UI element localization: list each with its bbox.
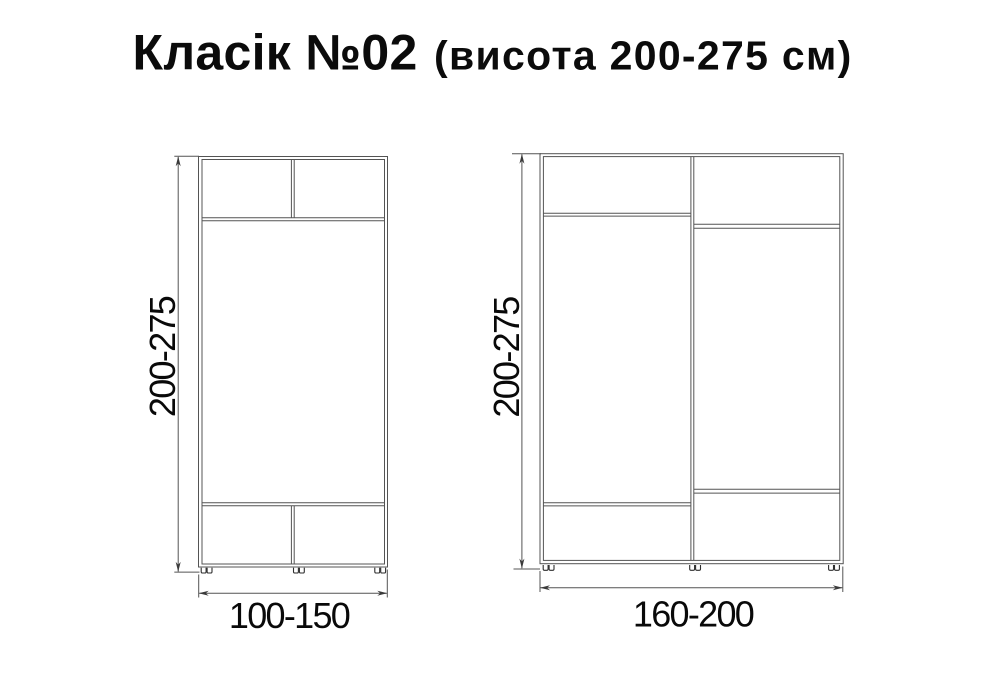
svg-text:Класік №02 (висота 200-275 см): Класік №02 (висота 200-275 см) <box>133 24 853 80</box>
svg-text:100-150: 100-150 <box>229 595 350 636</box>
svg-text:200-275: 200-275 <box>486 297 527 418</box>
svg-text:200-275: 200-275 <box>142 296 183 417</box>
svg-text:160-200: 160-200 <box>633 593 754 634</box>
